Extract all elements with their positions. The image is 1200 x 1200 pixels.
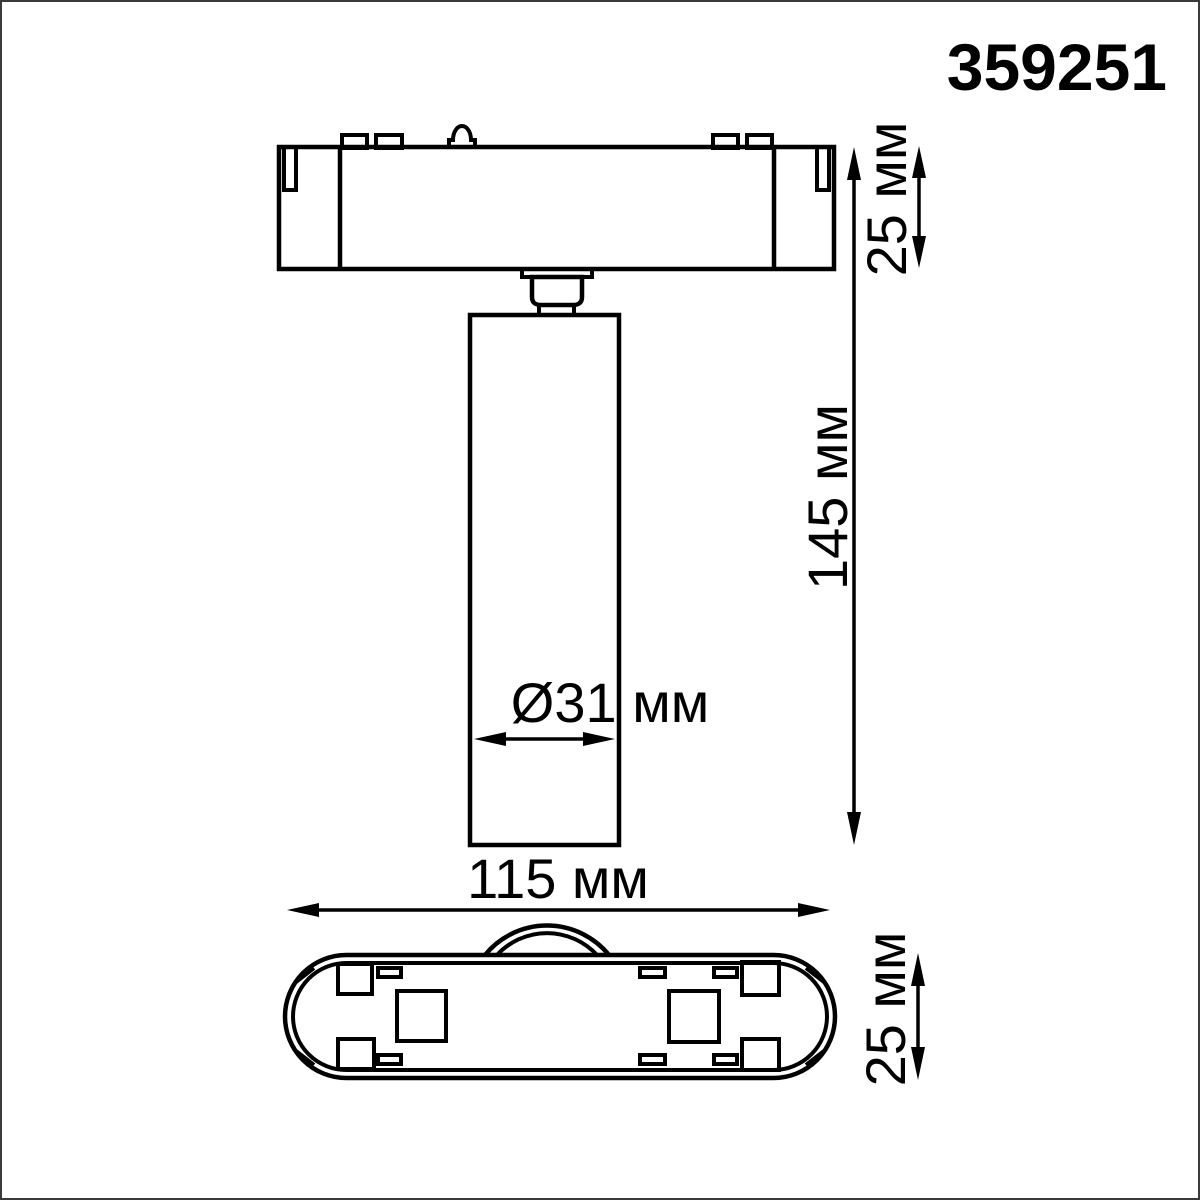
dimension-label-length: 115 мм xyxy=(467,847,649,910)
mount-slot xyxy=(640,1055,665,1064)
arrowhead-right xyxy=(798,903,830,917)
dimension-overall-length: 115 мм xyxy=(287,847,830,917)
button-dome xyxy=(449,126,475,148)
mount-slot xyxy=(338,964,372,994)
arrowhead-left xyxy=(474,732,506,746)
arrowhead-right xyxy=(583,732,615,746)
dimension-base-width: 25 мм xyxy=(854,932,925,1087)
swivel-block xyxy=(532,277,582,305)
dimension-label-track-height: 25 мм xyxy=(855,122,918,277)
dimension-annotations: 25 мм 145 мм Ø31 мм 115 мм xyxy=(287,122,926,1087)
technical-drawing: 359251 xyxy=(2,2,1198,1198)
mount-slot xyxy=(714,968,737,977)
swivel-arc-inner xyxy=(497,933,597,955)
contact-tab xyxy=(342,135,367,148)
dimension-body-diameter: Ø31 мм xyxy=(474,671,709,746)
mount-slot xyxy=(742,962,779,995)
mount-slot xyxy=(378,1055,401,1064)
side-view xyxy=(279,126,834,845)
magnet-pad xyxy=(397,991,446,1041)
mount-slot xyxy=(338,1039,374,1069)
dimension-label-base-width: 25 мм xyxy=(854,932,917,1087)
mount-slot xyxy=(378,968,401,977)
contact-tab xyxy=(376,135,402,148)
dimension-total-height: 145 мм xyxy=(796,147,861,845)
dimension-label-total-height: 145 мм xyxy=(796,404,859,590)
mount-slot xyxy=(714,1055,737,1064)
drawing-page: 359251 xyxy=(0,0,1200,1200)
arrowhead-down xyxy=(847,812,861,845)
arrowhead-left xyxy=(287,903,319,917)
lamp-body-cylinder xyxy=(470,315,619,845)
dimension-label-diameter: Ø31 мм xyxy=(511,671,709,734)
mount-slot xyxy=(640,968,665,977)
magnet-pad xyxy=(669,991,719,1042)
product-code-title: 359251 xyxy=(947,30,1167,104)
contact-tab xyxy=(713,135,738,148)
adapter-left-clip-notch xyxy=(284,148,296,190)
bottom-view xyxy=(285,926,835,1078)
dimension-track-height: 25 мм xyxy=(855,122,926,277)
base-outline-outer xyxy=(285,955,835,1078)
contact-tab xyxy=(747,135,772,148)
mount-slot xyxy=(742,1039,779,1070)
adapter-right-clip-notch xyxy=(817,148,829,190)
track-adapter-body xyxy=(279,147,834,269)
